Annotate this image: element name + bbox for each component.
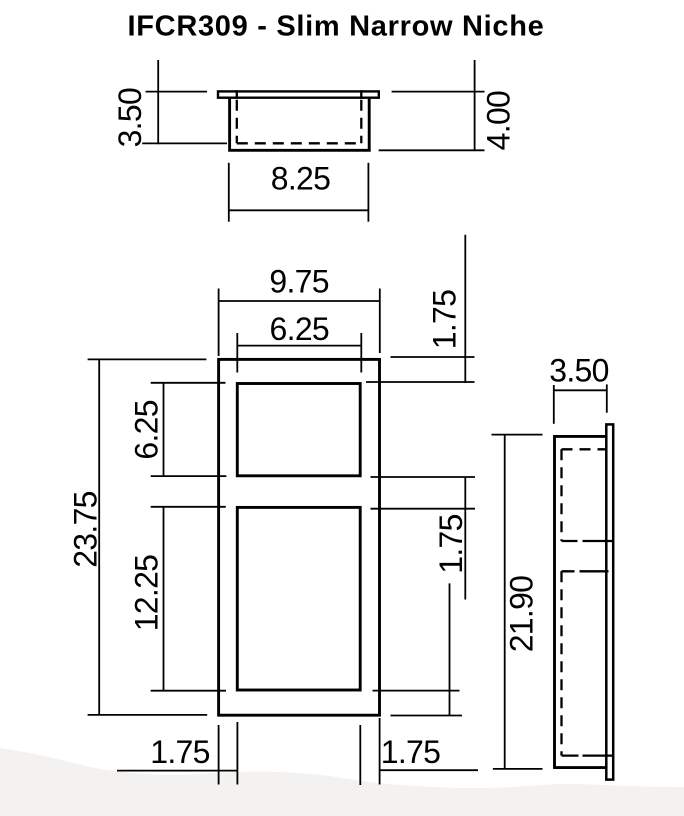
svg-text:1.75: 1.75 [381,734,440,770]
svg-text:4.00: 4.00 [481,91,517,150]
svg-text:1.75: 1.75 [150,734,209,770]
svg-text:23.75: 23.75 [68,491,104,568]
svg-text:IFCR309 - Slim Narrow Niche: IFCR309 - Slim Narrow Niche [128,11,545,43]
svg-text:12.25: 12.25 [128,555,164,632]
svg-text:3.50: 3.50 [549,353,608,389]
svg-text:6.25: 6.25 [270,311,329,347]
svg-text:21.90: 21.90 [504,576,540,653]
svg-text:1.75: 1.75 [426,290,462,349]
svg-text:6.25: 6.25 [128,400,164,459]
svg-text:8.25: 8.25 [271,161,330,197]
svg-text:9.75: 9.75 [269,263,328,299]
svg-text:3.50: 3.50 [112,88,148,147]
svg-text:1.75: 1.75 [433,514,469,573]
